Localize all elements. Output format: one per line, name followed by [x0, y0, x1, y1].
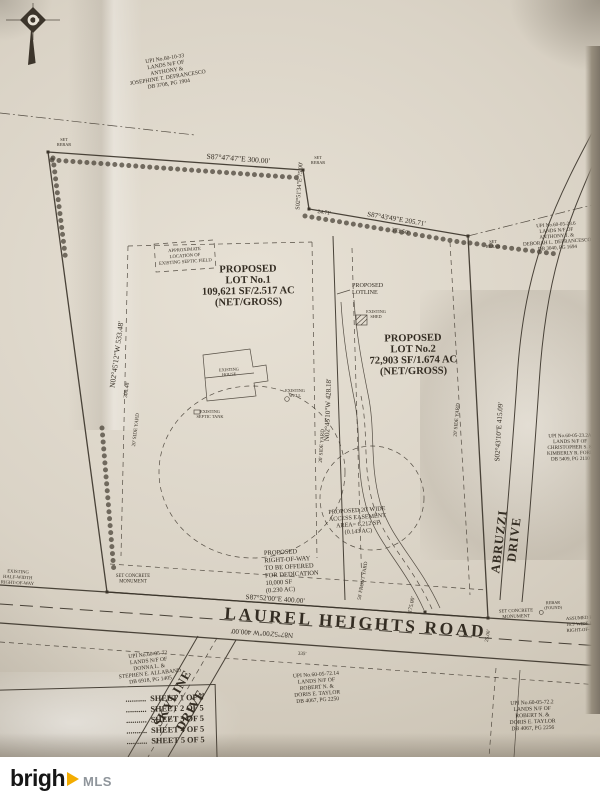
bearing-west: N02°45'12"W 533.48' [108, 320, 126, 388]
marker-text: MONUMENT [119, 580, 147, 585]
dim-diagonal: 373.50' [391, 228, 410, 237]
marker-text: MONUMENT [502, 614, 530, 620]
existing-shed-label: EXISTING SHED [366, 309, 386, 319]
side-yard-label: 20' SIDE YARD [318, 429, 326, 463]
set-rebar-note: SET REBAR [486, 239, 500, 249]
bearing-road-south: N87°52'00"W 400.00' [230, 627, 293, 639]
parcel-note-upi-60-05-23-6: UPI No.60-05-23.6 LANDS N/F OF ANTHONY J… [522, 220, 593, 254]
existing-well-label: EXISTING WELL [285, 388, 305, 398]
bearing-text: N87°52'00"W 400.00' [230, 627, 293, 639]
row-dedication-line: (0.230 AC) [266, 586, 296, 595]
lot1-label: PROPOSED LOT No.1 109,621 SF/2.517 AC (N… [201, 263, 295, 309]
marker-text: SEPTIC TANK [197, 414, 225, 419]
existing-house-label: EXISTING HOUSE [219, 366, 239, 377]
lot2-line: LOT No.2 [390, 344, 436, 356]
side-yard-label: 20' SIDE YARD [453, 403, 462, 437]
set-rebar-note: SET REBAR [311, 155, 325, 165]
bearing-text: S02°43'10"E 415.09' [493, 402, 505, 462]
parcel-note-upi-60-05-72-2: UPI No.60-05-72.2 LANDS N/F OF ROBERT N.… [509, 699, 556, 732]
set-rebar-note: SET REBAR [57, 137, 71, 147]
septic-field-line: EXISTING SEPTIC FIELD [159, 258, 213, 267]
lotline-line: LOTLINE [352, 290, 378, 296]
dim-text: 308.48' [123, 381, 131, 398]
front-yard-label: 50' FRONT YARD [357, 561, 370, 601]
brightmls-triangle-icon [67, 772, 79, 786]
sheet-index-row: ..........SHEET 3 OF 5 [126, 714, 204, 725]
existing-septic-tank-label: EXISTING SEPTIC TANK [197, 409, 225, 419]
access-easement-note: PROPOSED 20' WIDE ACCESS EASEMENT AREA= … [328, 506, 387, 537]
yard-text: 20' SIDE YARD [453, 403, 462, 437]
parcel-note-upi-60-05-72-14: UPI No.60-05-72.14 LANDS N/F OF ROBERT N… [293, 670, 341, 705]
plat-drawing: UPI No.60-10-33 LANDS N/F OF ANTHONY & J… [0, 0, 600, 757]
dim-335: 335' [298, 651, 307, 658]
bearing-text: S87°43'49"E 205.71' [367, 210, 427, 228]
marker-text: REBAR [486, 244, 500, 249]
parcel-note-line: DB 4067, PG 2256 [511, 725, 554, 733]
lot2-line: (NET/GROSS) [380, 365, 448, 377]
marker-text: RIGHT-OF-WAY [1, 580, 35, 587]
bearing-diagonal: S87°43'49"E 205.71' [367, 210, 427, 228]
septic-reserve-areas [159, 386, 424, 558]
marker-text: HOUSE [222, 371, 237, 377]
dim-text: 24.71' [317, 209, 331, 217]
bearing-text: N02°45'12"W 533.48' [108, 320, 126, 388]
dim-text: 373.50' [391, 228, 410, 237]
north-arrow-icon [6, 3, 60, 65]
dim-text: 175.00' [407, 596, 416, 613]
rebar-found-note: REBAR (FOUND) [539, 600, 563, 615]
lotline-line: PROPOSED [352, 283, 384, 289]
marker-text: SHED [370, 314, 381, 319]
parcel-note-upi-60-10-33: UPI No.60-10-33 LANDS N/F OF ANTHONY & J… [126, 50, 207, 93]
dim-text: 335' [298, 651, 307, 658]
survey-photo-listing: UPI No.60-10-33 LANDS N/F OF ANTHONY & J… [0, 0, 600, 800]
yard-text: 20' SIDE YARD [131, 413, 141, 447]
lot2-label: PROPOSED LOT No.2 72,903 SF/1.674 AC (NE… [369, 332, 457, 378]
lot1-line: LOT No.1 [225, 275, 271, 287]
row-dedication-note: PROPOSED RIGHT-OF-WAY TO BE OFFERED FOR … [264, 547, 320, 594]
dim-175: 175.00' [407, 596, 416, 613]
brightmls-bar: brigh MLS [0, 757, 600, 800]
paper-edge-shadow [0, 733, 600, 757]
marker-text: (FOUND) [544, 605, 562, 611]
dim-jog: 24.71' [317, 209, 331, 217]
proposed-lotline [333, 236, 345, 600]
marker-text: SET CONCRETE [116, 574, 150, 579]
yard-text: 20' SIDE YARD [318, 429, 326, 463]
bearing-east: S02°43'10"E 415.09' [493, 402, 505, 462]
brightmls-mls-text: MLS [83, 774, 112, 789]
dim-west: 308.48' [123, 381, 131, 398]
set-concrete-monument-note: SET CONCRETE MONUMENT [116, 574, 150, 585]
marker-text: REBAR [311, 160, 325, 165]
yard-text: 50' FRONT YARD [357, 561, 370, 601]
existing-row-note: EXISTING HALF-WIDTH RIGHT-OF-WAY [1, 569, 36, 587]
marker-text: REBAR [57, 142, 71, 147]
brightmls-wordmark: brigh [10, 765, 65, 792]
side-yard-label: 20' SIDE YARD [131, 413, 141, 447]
setback-lines [110, 242, 487, 595]
proposed-lotline-label: PROPOSED LOTLINE [337, 283, 384, 296]
lot1-line: (NET/GROSS) [215, 296, 283, 308]
paper-edge-shadow [585, 46, 600, 714]
existing-structures [194, 315, 367, 414]
marker-text: WELL [289, 393, 301, 398]
set-concrete-monument-note: SET CONCRETE MONUMENT [499, 608, 534, 620]
tree-line [52, 158, 556, 572]
